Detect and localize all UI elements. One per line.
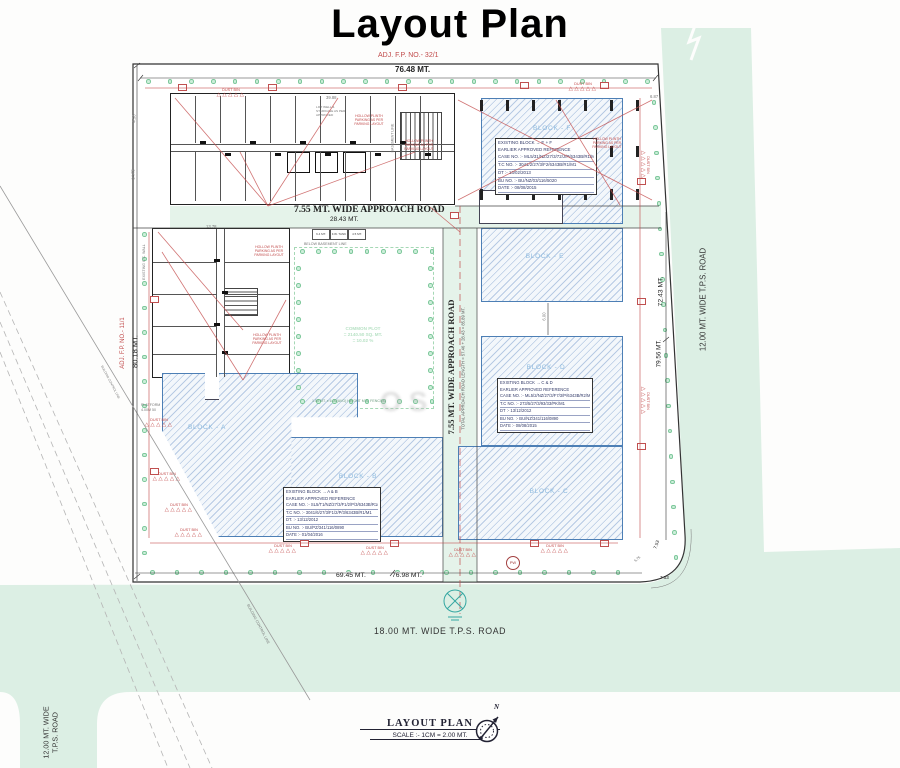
tree-icon xyxy=(537,79,542,84)
dust-bin: DUST BIN△△△△△ xyxy=(260,544,306,554)
tree-icon xyxy=(666,404,671,409)
table-cd: EXISTING BLOCK → C & D EARLIER APPROVED … xyxy=(497,378,593,433)
partition-line xyxy=(395,152,396,201)
reference-box-icon xyxy=(450,212,459,219)
partition-line xyxy=(224,262,289,263)
tree-icon xyxy=(670,480,675,485)
partition-line xyxy=(224,229,225,377)
dim-687: 6.87 xyxy=(650,94,658,99)
table-ab-row: DT. :- 13/12/2012 xyxy=(286,517,378,525)
tree-icon xyxy=(428,283,433,288)
partition-line xyxy=(224,354,289,355)
table-ef-row: EXISTING BLOCK → E + F xyxy=(498,140,594,147)
tree-icon xyxy=(142,551,147,556)
table-cd-row: T.C NO. :- 273/5/27/3/93/33/PK/M1 xyxy=(500,401,590,409)
tree-icon xyxy=(142,502,147,507)
tree-icon xyxy=(297,570,302,575)
dust-bin: DUST BIN△△△△△ xyxy=(560,82,606,92)
tree-icon xyxy=(349,249,354,254)
tree-icon xyxy=(616,570,621,575)
reference-box-icon xyxy=(600,540,609,547)
approach-road-h-label: 7.55 MT. WIDE APPROACH ROAD xyxy=(294,205,445,215)
tree-icon xyxy=(428,368,433,373)
dust-bin-icon: △△△△△ xyxy=(440,553,486,558)
tree-icon xyxy=(397,249,402,254)
partition-line xyxy=(320,152,321,201)
approach-total: TOTAL APPROACH ROAD LENGTH = 57.46 + 28.… xyxy=(461,279,466,459)
parking-stall-mark xyxy=(610,100,613,111)
partition-line xyxy=(320,96,321,143)
tree-icon xyxy=(428,79,433,84)
approach-road-v-label: 7.55 MT. WIDE APPROACH ROAD xyxy=(446,297,456,437)
dust-bin: DUST BIN△△△△△ xyxy=(532,544,578,554)
watermark: OS xyxy=(380,386,434,418)
tree-icon xyxy=(296,266,301,271)
dust-bin-label: DUST BIN xyxy=(646,156,650,174)
partition-line xyxy=(370,152,371,201)
parking-note-3: HOLLOW PLINTH PARKING AS PER PARKING LAY… xyxy=(586,138,628,150)
door-mark xyxy=(225,153,231,156)
door-mark xyxy=(300,141,306,144)
corner-dim-b: 7.53 xyxy=(660,575,669,580)
lift-note: LIFT WELL & STAIRCASE AS PER APPROVED xyxy=(316,106,352,117)
tree-icon xyxy=(406,79,411,84)
tree-icon xyxy=(296,385,301,390)
road-left-line2: T.P.S. ROAD xyxy=(51,688,60,768)
tree-icon xyxy=(428,351,433,356)
table-cd-row: CASE NO. :- ML5/2/NZ/27/3/F7/3/P/6343B/R… xyxy=(500,393,590,401)
parking-note-5: HOLLOW PLINTH PARKING AS PER PARKING LAY… xyxy=(246,334,288,346)
partition-line xyxy=(195,96,196,143)
tree-icon xyxy=(450,79,455,84)
tree-icon xyxy=(493,79,498,84)
tree-icon xyxy=(199,570,204,575)
parking-stall-mark xyxy=(636,189,639,200)
dust-bin: DUST BIN△△△△△ xyxy=(641,378,651,424)
dim-1475: 14.75 xyxy=(131,169,136,179)
partition-line xyxy=(395,96,396,143)
partition-line xyxy=(224,294,289,295)
tree-icon xyxy=(469,570,474,575)
table-cd-row: DATE :- 08/08/2015 xyxy=(500,423,590,431)
reference-box-icon xyxy=(268,84,277,91)
door-mark xyxy=(275,153,281,156)
table-cd-row: DT :- 13/12/2012 xyxy=(500,408,590,416)
table-ab-row: DATE :- 01/04/2016 xyxy=(286,532,378,540)
parking-stall-mark xyxy=(558,100,561,111)
parking-stall-mark xyxy=(636,146,639,157)
approach-len: 28.43 MT. xyxy=(330,216,359,223)
tree-icon xyxy=(365,249,370,254)
partition-line xyxy=(220,152,221,201)
tank-box-3: 4.5 MT. xyxy=(348,229,366,240)
reference-box-icon xyxy=(637,443,646,450)
footer-scale: SCALE :- 1CM = 2.00 MT. xyxy=(370,732,490,740)
tree-icon xyxy=(316,249,321,254)
parking-stall-mark xyxy=(636,100,639,111)
tree-icon xyxy=(672,530,677,535)
tree-icon xyxy=(669,454,674,459)
dust-bin-icon: △△△△△ xyxy=(260,549,306,554)
table-ef-row: CASE NO. :- ML5/31/NZ/27/3/72/J/P/6343B/… xyxy=(498,154,594,162)
door-mark xyxy=(214,259,220,262)
partition-line xyxy=(216,229,217,377)
road-right-label: 12.00 MT. WIDE T.P.S. ROAD xyxy=(699,240,708,360)
tree-icon xyxy=(428,300,433,305)
tree-icon xyxy=(664,353,669,358)
table-ef-row: DATE :- 08/08/2015 xyxy=(498,185,594,193)
tree-icon xyxy=(341,79,346,84)
tree-icon xyxy=(567,570,572,575)
reference-box-icon xyxy=(520,82,529,89)
adj-fp-left: ADJ. F.P. NO.- 11/1 xyxy=(120,303,126,383)
road-bottom-label: 18.00 MT. WIDE T.P.S. ROAD xyxy=(374,626,506,636)
parking-stall-mark xyxy=(532,100,535,111)
table-ef-row: T.C NO. :- 3041/2/27/3/F2/6343B/R1/M1 xyxy=(498,162,594,170)
table-ef-row: DT :- 13/02/2013 xyxy=(498,170,594,178)
partition-line xyxy=(295,152,296,201)
tree-icon xyxy=(428,317,433,322)
tank-box-1: 6.4 MT. xyxy=(312,229,330,240)
dust-bin-icon: △△△△△ xyxy=(532,549,578,554)
tree-icon xyxy=(273,570,278,575)
tree-icon xyxy=(645,79,650,84)
tree-icon xyxy=(296,334,301,339)
tree-icon xyxy=(653,125,658,130)
tree-icon xyxy=(142,355,147,360)
fence-note: 1.50 MT. x 6.00(AVG) HEIGHT M.S. FENCING xyxy=(312,399,386,403)
partition-line xyxy=(153,262,216,263)
table-ab-row: CASE NO. :- SL5/T1/NZ/27/3/F1/2/P/3/6343… xyxy=(286,502,378,510)
partition-line xyxy=(345,96,346,143)
partition-line xyxy=(224,326,289,327)
dust-bin-icon: △△△△△ xyxy=(144,477,190,482)
door-mark xyxy=(375,153,381,156)
tree-icon xyxy=(430,249,435,254)
tree-icon xyxy=(168,79,173,84)
partition-line xyxy=(245,152,246,201)
tree-icon xyxy=(255,79,260,84)
platform-note: PLATFORM 4.00M 50 xyxy=(141,403,171,412)
dust-bin: DUST BIN△△△△△ xyxy=(166,528,212,538)
partition-line xyxy=(420,152,421,201)
tree-icon xyxy=(413,249,418,254)
dust-bin-icon: △△△△△ xyxy=(166,533,212,538)
dim-right-lower: 79.56 MT. xyxy=(656,324,663,384)
dust-bin-icon: △△△△△ xyxy=(156,508,202,513)
door-mark xyxy=(222,351,228,354)
tree-icon xyxy=(371,570,376,575)
parking-note-2: HOLLOW PLINTH PARKING AS PER PARKING LAY… xyxy=(398,140,440,152)
tree-icon xyxy=(276,79,281,84)
tree-icon xyxy=(142,453,147,458)
tree-icon xyxy=(655,176,660,181)
tree-icon xyxy=(146,79,151,84)
dust-bin: DUST BIN△△△△△ xyxy=(136,418,182,428)
dust-bin-icon: △△△△△ xyxy=(352,551,398,556)
dim-right-upper: 72.43 MT. xyxy=(658,262,665,322)
tree-icon xyxy=(381,249,386,254)
dust-bin-icon: △△△△△ xyxy=(641,142,646,188)
door-mark xyxy=(325,153,331,156)
dust-bin-icon: △△△△△ xyxy=(560,87,606,92)
tree-icon xyxy=(296,283,301,288)
partition-line xyxy=(220,96,221,143)
door-mark xyxy=(222,291,228,294)
dim-bottom-b: 76.98 MT. xyxy=(392,572,422,579)
parking-stall-mark xyxy=(610,189,613,200)
tree-icon xyxy=(591,570,596,575)
tree-icon xyxy=(659,252,664,257)
tree-icon xyxy=(296,317,301,322)
tree-icon xyxy=(248,570,253,575)
dim-top: 76.48 MT. xyxy=(395,65,430,74)
tree-icon xyxy=(142,379,147,384)
table-ab-row: BU NO. :- BU/PZ/341/116/0890 xyxy=(286,525,378,533)
tree-icon xyxy=(300,399,305,404)
tree-icon xyxy=(142,330,147,335)
tree-icon xyxy=(515,79,520,84)
tree-icon xyxy=(363,79,368,84)
reference-box-icon xyxy=(398,84,407,91)
door-mark xyxy=(425,153,431,156)
door-mark xyxy=(214,323,220,326)
table-ef-row: BU NO. :- BU/NZ/03/116/5020 xyxy=(498,178,594,186)
tree-icon xyxy=(658,227,663,232)
dust-bin: DUST BIN△△△△△ xyxy=(352,546,398,556)
dust-bin: DUST BIN△△△△△ xyxy=(208,88,254,98)
tree-icon xyxy=(674,555,679,560)
tree-icon xyxy=(385,79,390,84)
dust-bin-icon: △△△△△ xyxy=(641,378,646,424)
dust-bin: DUST BIN△△△△△ xyxy=(641,142,651,188)
tree-icon xyxy=(224,570,229,575)
tree-icon xyxy=(296,300,301,305)
tree-icon xyxy=(332,249,337,254)
road-left-label: 12.00 MT. WIDE T.P.S. ROAD xyxy=(43,688,60,768)
partition-line xyxy=(153,354,216,355)
tree-icon xyxy=(150,570,155,575)
table-ef-row: EARLIER APPROVED REFERENCE xyxy=(498,147,594,154)
dust-bin: DUST BIN△△△△△ xyxy=(440,548,486,558)
table-cd-row: BU NO. :- BU/NZ/341/116/0890 xyxy=(500,416,590,424)
tree-icon xyxy=(428,266,433,271)
tree-icon xyxy=(663,328,668,333)
tree-icon xyxy=(654,151,659,156)
door-mark xyxy=(200,141,206,144)
partition-line xyxy=(270,96,271,143)
table-ab: EXISTING BLOCK → A & B EARLIER APPROVED … xyxy=(283,487,381,542)
dust-bin-label: DUST BIN xyxy=(646,392,650,410)
dust-bin-icon: △△△△△ xyxy=(136,423,182,428)
north-label: N xyxy=(494,703,499,711)
table-ab-row: T.C NO. :- 3041/6/27/3/F1/2/P/3/6343B/R1… xyxy=(286,510,378,518)
tree-icon xyxy=(668,429,673,434)
tree-icon xyxy=(296,351,301,356)
tree-icon xyxy=(296,368,301,373)
footer-title: LAYOUT PLAN xyxy=(360,718,500,730)
dim-3988: 39.88 xyxy=(326,95,336,100)
tree-icon xyxy=(320,79,325,84)
adj-fp-top: ADJ. F.P. NO.- 32/1 xyxy=(378,52,439,59)
tree-icon xyxy=(142,281,147,286)
tree-icon xyxy=(623,79,628,84)
partition-line xyxy=(345,152,346,201)
partition-line xyxy=(420,96,421,143)
reference-box-icon xyxy=(150,296,159,303)
tree-icon xyxy=(142,428,147,433)
pw-marker: PW xyxy=(506,556,520,570)
tree-icon xyxy=(233,79,238,84)
parking-stall-mark xyxy=(480,100,483,111)
tree-icon xyxy=(175,570,180,575)
tree-icon xyxy=(518,570,523,575)
table-ef: EXISTING BLOCK → E + F EARLIER APPROVED … xyxy=(495,138,597,195)
existing-wall-note: EXISTING C.C. WALL xyxy=(142,244,146,280)
tree-icon xyxy=(657,201,662,206)
reference-box-icon xyxy=(178,84,187,91)
dim-450: 4.50 xyxy=(132,114,137,122)
partition-line xyxy=(270,152,271,201)
tree-icon xyxy=(472,79,477,84)
dim-left: 80.18 MT. xyxy=(131,322,140,382)
parking-stall-mark xyxy=(480,189,483,200)
reference-box-icon xyxy=(637,298,646,305)
dust-bin: DUST BIN△△△△△ xyxy=(144,472,190,482)
parking-stall-mark xyxy=(584,100,587,111)
dust-bin-icon: △△△△△ xyxy=(208,93,254,98)
dust-bin: DUST BIN△△△△△ xyxy=(156,503,202,513)
parking-note-1: HOLLOW PLINTH PARKING AS PER PARKING LAY… xyxy=(348,115,390,127)
partition-line xyxy=(153,294,216,295)
partition-line xyxy=(245,96,246,143)
tree-icon xyxy=(444,570,449,575)
partition-line xyxy=(195,152,196,201)
tank-box-2: F.W. TANK xyxy=(330,229,348,240)
tree-icon xyxy=(322,570,327,575)
tree-icon xyxy=(652,100,657,105)
partition-line xyxy=(153,326,216,327)
tree-icon xyxy=(142,526,147,531)
tree-icon xyxy=(189,79,194,84)
tree-icon xyxy=(428,334,433,339)
parking-stall-mark xyxy=(506,100,509,111)
tree-icon xyxy=(142,232,147,237)
tree-icon xyxy=(665,378,670,383)
dim-600: 6.00 xyxy=(542,312,547,320)
parking-note-4: HOLLOW PLINTH PARKING AS PER PARKING LAY… xyxy=(248,246,290,258)
tree-icon xyxy=(300,249,305,254)
layout-plan-canvas: Layout Plan OS COMMON PLOT = 2140.50 SQ.… xyxy=(0,0,900,768)
tree-icon xyxy=(142,306,147,311)
dim-1378: 13.78 xyxy=(206,224,216,229)
basement-line-note: BASEMENT LINE xyxy=(390,124,394,153)
door-mark xyxy=(350,141,356,144)
dim-bottom-a: 69.45 MT. xyxy=(336,572,366,579)
tree-icon xyxy=(493,570,498,575)
tree-icon xyxy=(298,79,303,84)
tree-icon xyxy=(671,505,676,510)
partition-line xyxy=(295,96,296,143)
tree-icon xyxy=(542,570,547,575)
door-mark xyxy=(250,141,256,144)
tree-icon xyxy=(211,79,216,84)
tank-boxes: 6.4 MT.F.W. TANK4.5 MT. xyxy=(312,229,366,247)
